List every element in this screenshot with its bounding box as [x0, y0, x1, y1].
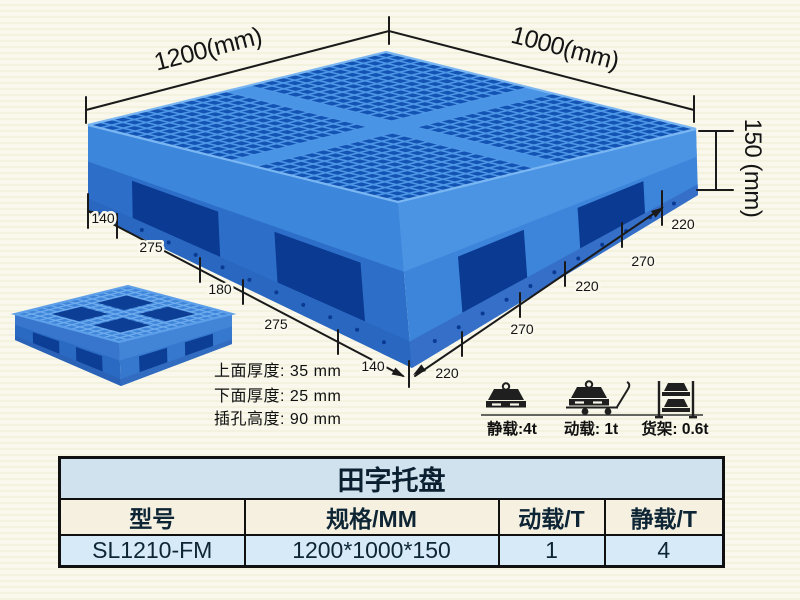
rack-load-icon: [655, 381, 697, 418]
cell-spec: 1200*1000*150: [245, 535, 499, 567]
spec-table: 田字托盘 型号 规格/MM 动载/T 静载/T SL1210-FM 1200*1…: [58, 456, 725, 568]
dimension-label: 220: [671, 216, 695, 232]
cell-static-load: 4: [605, 535, 724, 567]
height-dimension-label: 150 (mm): [739, 119, 766, 218]
width-dimension-label: 1000(mm): [508, 21, 621, 76]
dimension-label: 220: [435, 365, 459, 381]
static-load-icon: [486, 383, 526, 407]
fork-hole-height-note: 插孔高度: 90 mm: [214, 410, 341, 428]
cell-model: SL1210-FM: [60, 535, 245, 567]
dimension-label: 220: [575, 278, 599, 294]
small-pallet-illustration: [15, 286, 232, 386]
bottom-thickness-note: 下面厚度: 25 mm: [214, 387, 341, 405]
header-dynamic-load: 动载/T: [499, 499, 605, 535]
dimension-label: 270: [631, 253, 655, 269]
dimension-label: 275: [264, 316, 288, 332]
rack-load-label: 货架: 0.6t: [641, 419, 708, 438]
load-rating-area: 静载:4t 动载: 1t 货架: 0.6t: [481, 381, 709, 438]
dimension-label: 270: [510, 321, 534, 337]
dynamic-load-icon: [566, 381, 629, 415]
product-sheet: 1200(mm) 1000(mm) 150 (mm) 140 275 180 2…: [0, 0, 800, 600]
dimension-label: 140: [361, 358, 385, 374]
dimension-label: 180: [208, 281, 232, 297]
dimension-label: 140: [91, 210, 115, 226]
height-dimension-bracket: [697, 131, 733, 190]
header-model: 型号: [60, 499, 245, 535]
table-row: SL1210-FM 1200*1000*150 1 4: [60, 535, 724, 567]
header-static-load: 静载/T: [605, 499, 724, 535]
spec-table-title: 田字托盘: [60, 458, 724, 500]
dimension-label: 275: [139, 239, 163, 255]
cell-dynamic-load: 1: [499, 535, 605, 567]
dynamic-load-label: 动载: 1t: [564, 420, 618, 438]
left-chain-end-arrow: [392, 368, 405, 378]
thickness-notes: 上面厚度: 35 mm 下面厚度: 25 mm 插孔高度: 90 mm: [214, 362, 341, 428]
header-spec-mm: 规格/MM: [245, 499, 499, 535]
static-load-label: 静载:4t: [487, 419, 537, 438]
top-thickness-note: 上面厚度: 35 mm: [214, 362, 341, 380]
